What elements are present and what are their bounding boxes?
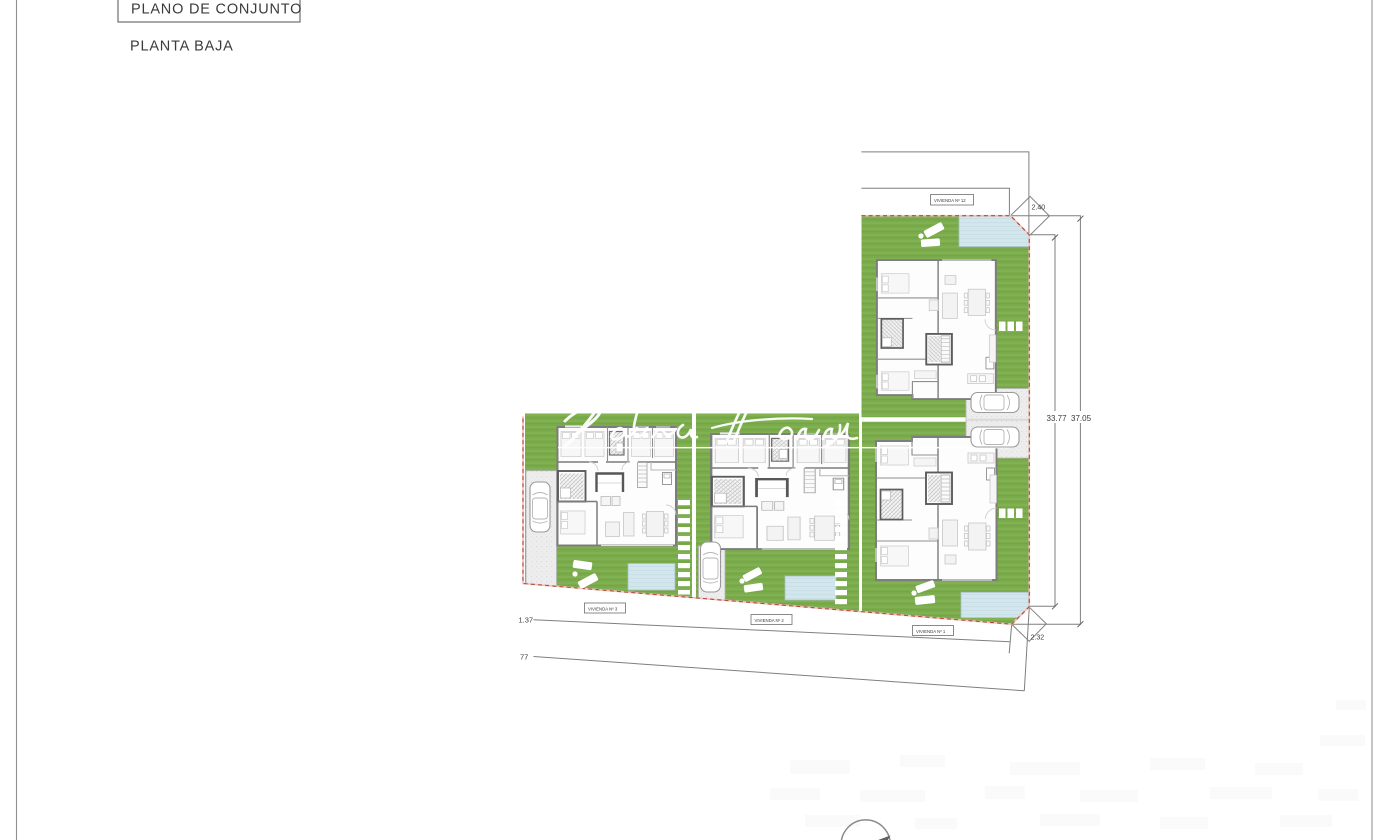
svg-text:PLANTA BAJA: PLANTA BAJA (130, 39, 234, 55)
svg-text:2.40: 2.40 (1032, 205, 1046, 212)
svg-text:1.37: 1.37 (519, 616, 534, 625)
svg-text:33.77: 33.77 (1047, 414, 1068, 423)
svg-text:VIVIENDA Nº 12: VIVIENDA Nº 12 (934, 198, 966, 203)
svg-text:PLANO DE CONJUNTO: PLANO DE CONJUNTO (131, 2, 302, 18)
svg-text:VIVIENDA Nº 3: VIVIENDA Nº 3 (588, 607, 618, 612)
svg-text:37.05: 37.05 (1071, 414, 1092, 423)
svg-text:VIVIENDA Nº 1: VIVIENDA Nº 1 (916, 629, 946, 634)
svg-text:VIVIENDA Nº 2: VIVIENDA Nº 2 (755, 618, 785, 623)
svg-text:77: 77 (520, 653, 528, 662)
svg-text:2.32: 2.32 (1031, 635, 1045, 642)
